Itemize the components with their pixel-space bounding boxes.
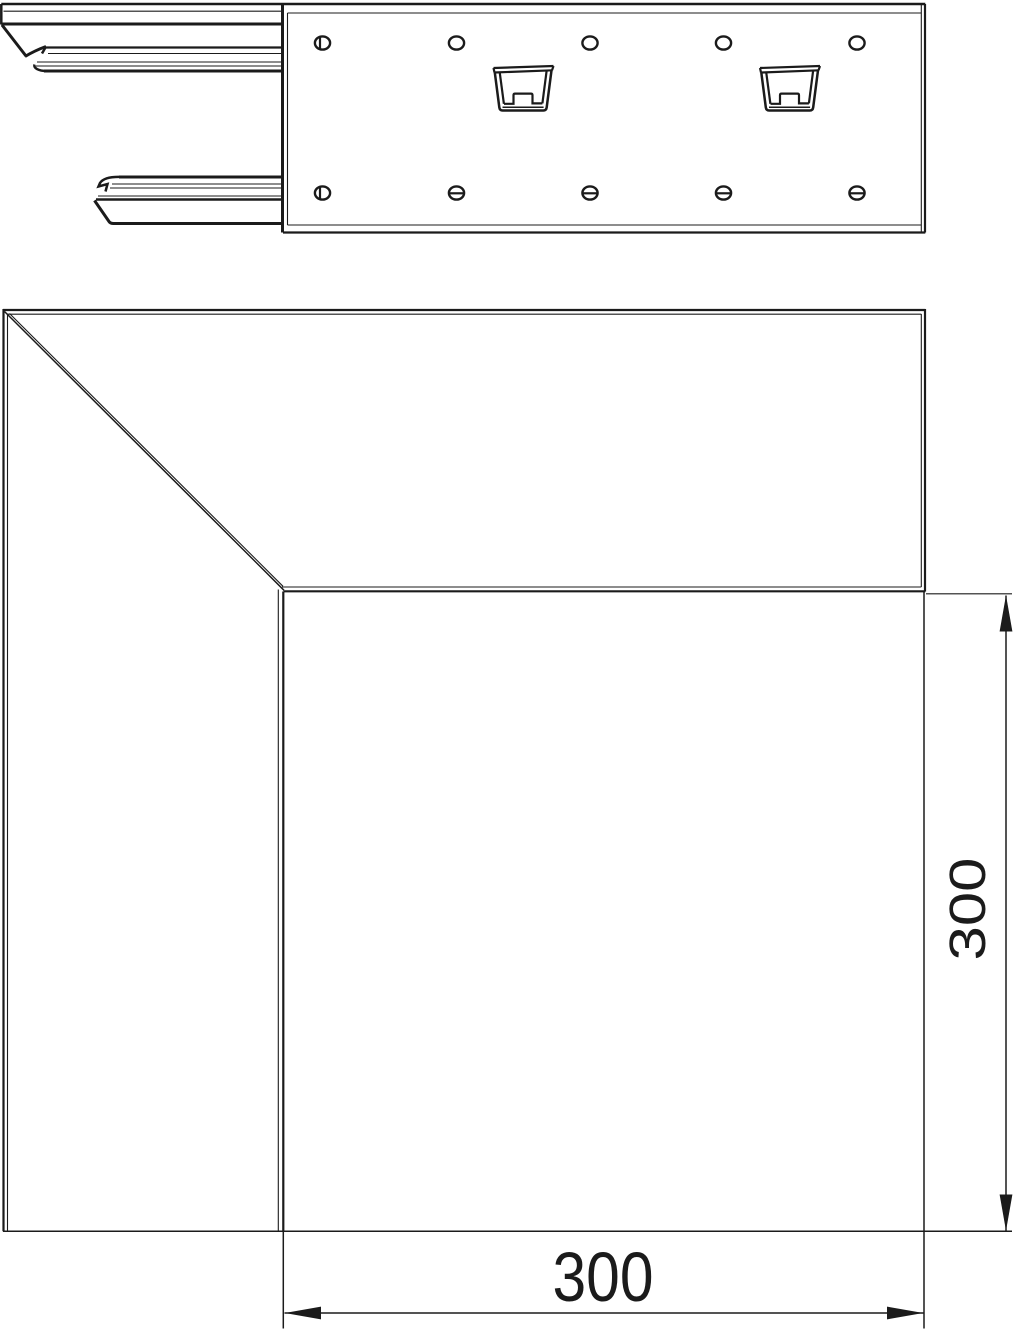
top-edge bbox=[1, 4, 925, 25]
arrowhead-up-icon bbox=[1000, 595, 1013, 631]
mounting-plate bbox=[283, 4, 926, 233]
screw-hole-slotted-icon bbox=[849, 186, 864, 199]
open-ends bbox=[3, 592, 1012, 1329]
technical-drawing-canvas: 300 300 bbox=[0, 0, 1024, 1329]
dimension-vertical: 300 bbox=[926, 594, 1012, 1231]
arrowhead-right-icon bbox=[887, 1307, 923, 1320]
mitre-joint-line bbox=[5, 312, 285, 591]
screw-hole-icon bbox=[449, 36, 464, 49]
screw-hole-icon bbox=[582, 36, 597, 49]
screw-hole-slotted-icon bbox=[716, 186, 731, 199]
arrowhead-down-icon bbox=[1000, 1195, 1013, 1231]
screw-hole-slotted-icon bbox=[315, 186, 330, 199]
dimension-width-value: 300 bbox=[553, 1238, 654, 1316]
snap-clip-icon bbox=[494, 66, 554, 111]
plan-view bbox=[3, 309, 1012, 1329]
screw-hole-slotted-icon bbox=[449, 186, 464, 199]
side-view bbox=[1, 4, 925, 233]
screw-holes-bottom-row bbox=[315, 186, 865, 199]
cover-profile-top bbox=[1, 24, 283, 71]
drawing-page: 300 300 bbox=[0, 0, 1024, 1329]
screw-holes-top-row bbox=[315, 36, 865, 49]
dimension-height-value: 300 bbox=[939, 858, 996, 961]
snap-clip-icon bbox=[760, 66, 820, 111]
screw-hole-slotted-icon bbox=[582, 186, 597, 199]
cover-profile-bottom bbox=[95, 177, 284, 224]
screw-hole-icon bbox=[716, 36, 731, 49]
dimension-horizontal: 300 bbox=[283, 1231, 923, 1328]
screw-hole-slotted-icon bbox=[315, 36, 330, 49]
screw-hole-icon bbox=[849, 36, 864, 49]
inner-edges bbox=[278, 587, 925, 1231]
arrowhead-left-icon bbox=[285, 1307, 321, 1320]
